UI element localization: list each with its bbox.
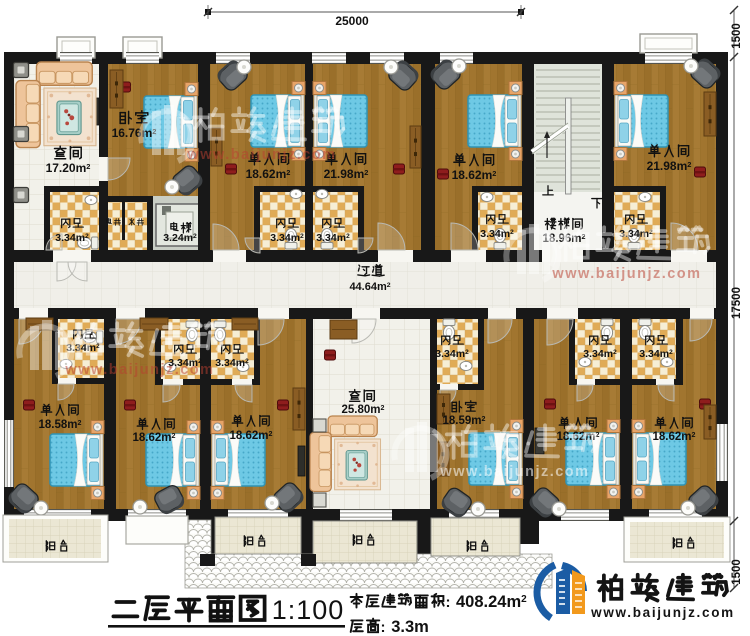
svg-text:www.baijunjz.com: www.baijunjz.com (551, 266, 701, 282)
svg-text:3.34m2: 3.34m2 (480, 228, 514, 240)
svg-text:18.62m2: 18.62m2 (452, 168, 497, 182)
svg-text:25000: 25000 (335, 14, 369, 28)
svg-text:3.34m2: 3.34m2 (639, 348, 673, 360)
svg-text:44.64m2: 44.64m2 (349, 281, 390, 293)
svg-text:www.baijunjz.com: www.baijunjz.com (590, 605, 735, 620)
svg-text:21.98m2: 21.98m2 (647, 159, 692, 173)
svg-text:3.34m2: 3.34m2 (55, 232, 89, 244)
svg-text:www.baijunjz.com: www.baijunjz.com (439, 464, 589, 480)
svg-text:3.34m2: 3.34m2 (215, 357, 249, 369)
svg-text:18.62m2: 18.62m2 (230, 430, 273, 442)
svg-text:408.24m2: 408.24m2 (456, 593, 527, 611)
svg-text:18.62m2: 18.62m2 (653, 431, 696, 443)
svg-text:1500: 1500 (731, 23, 743, 49)
svg-text:18.59m2: 18.59m2 (443, 415, 486, 427)
svg-text::: : (446, 594, 451, 611)
svg-text:3.34m2: 3.34m2 (270, 232, 304, 244)
svg-text:1500: 1500 (731, 559, 743, 585)
svg-text:www.baijunjz.com: www.baijunjz.com (64, 362, 214, 378)
svg-text:17.20m2: 17.20m2 (46, 161, 91, 175)
svg-text:3.3m: 3.3m (391, 618, 429, 636)
svg-text:18.62m2: 18.62m2 (133, 432, 176, 444)
svg-text:www.baijunjz.com: www.baijunjz.com (186, 147, 336, 163)
svg-text:17500: 17500 (731, 287, 743, 319)
svg-text::: : (381, 619, 386, 636)
svg-text:25.80m2: 25.80m2 (342, 404, 385, 416)
svg-text:3.24m2: 3.24m2 (163, 232, 197, 244)
svg-text:1:100: 1:100 (272, 595, 345, 625)
svg-text:18.58m2: 18.58m2 (39, 419, 82, 431)
svg-text:3.34m2: 3.34m2 (316, 232, 350, 244)
svg-text:3.34m2: 3.34m2 (583, 348, 617, 360)
svg-text:3.34m2: 3.34m2 (435, 348, 469, 360)
svg-text:16.76m2: 16.76m2 (112, 126, 157, 140)
svg-text:18.62m2: 18.62m2 (246, 167, 291, 181)
svg-text:21.98m2: 21.98m2 (324, 167, 369, 181)
